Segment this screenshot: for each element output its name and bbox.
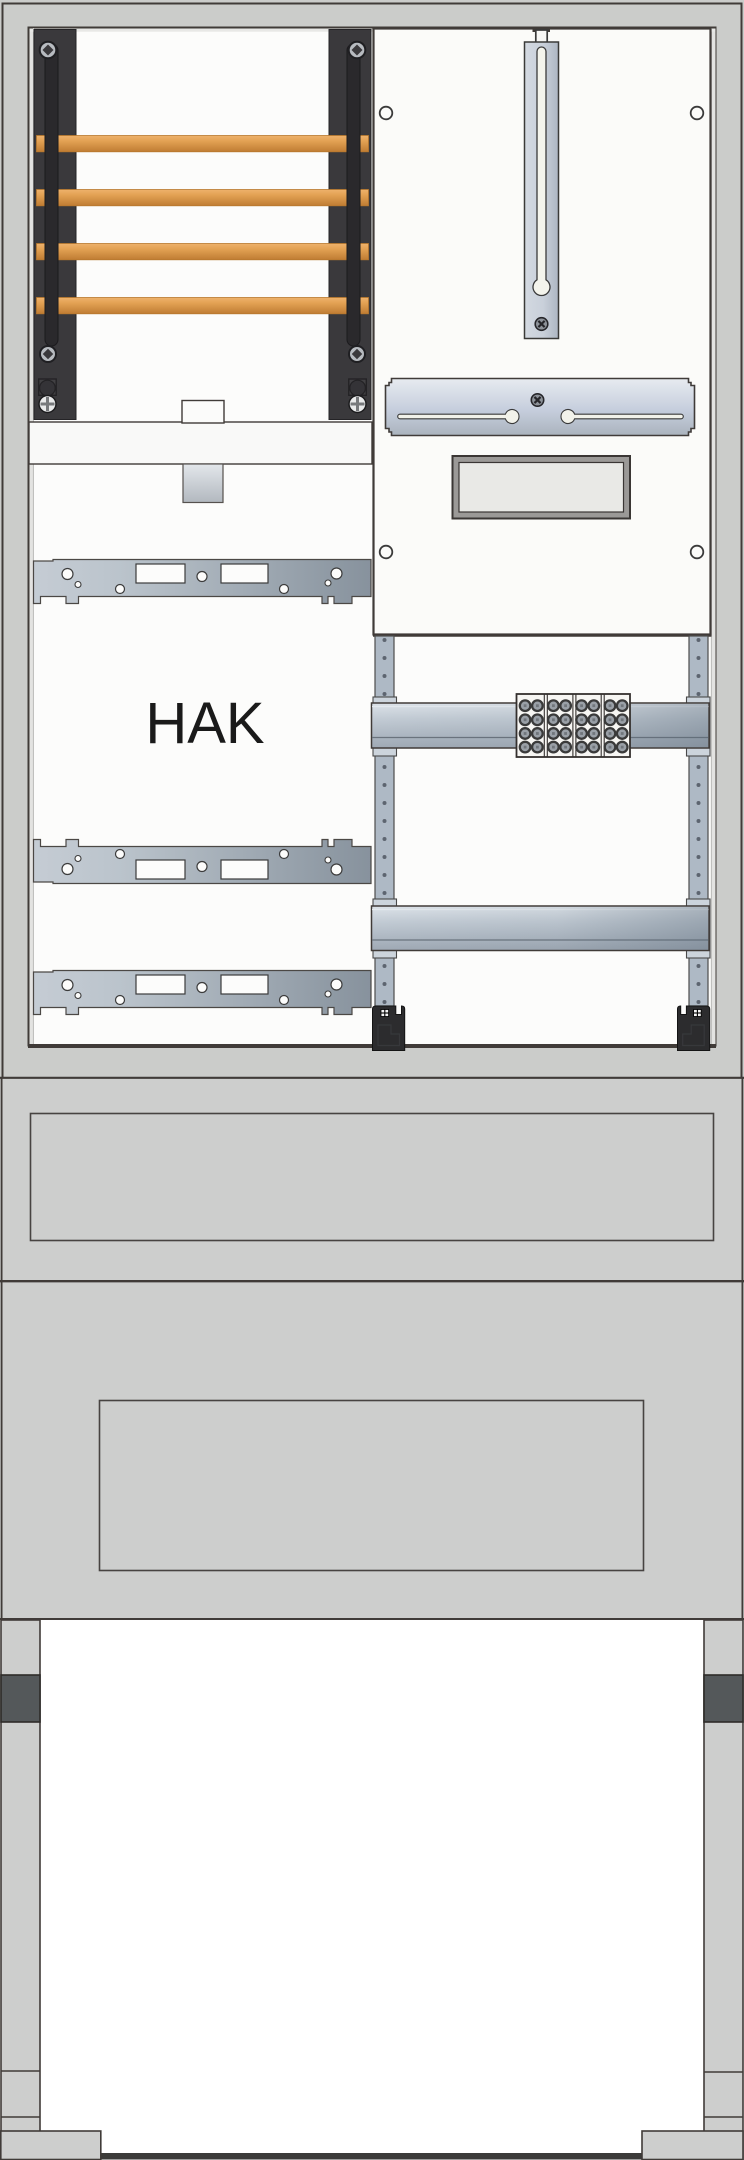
svg-text:HAK: HAK [145,691,265,756]
